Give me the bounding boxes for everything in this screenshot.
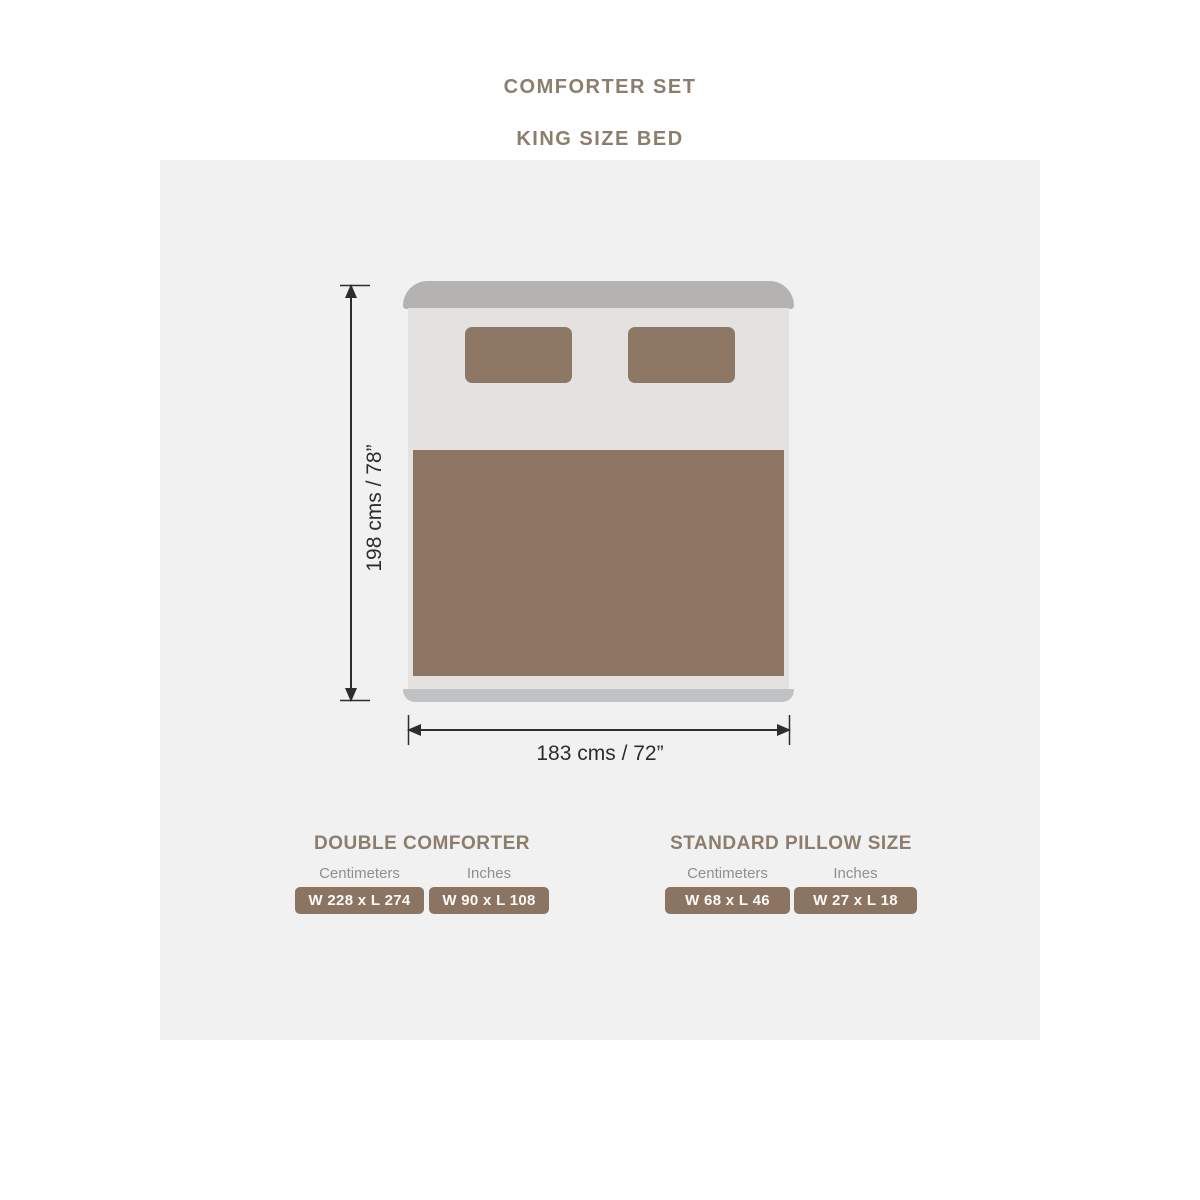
size-badge: W 228 x L 274 <box>295 887 424 914</box>
spec-heading: STANDARD PILLOW SIZE <box>665 834 917 854</box>
spec-heading: DOUBLE COMFORTER <box>295 834 549 854</box>
unit-label: Centimeters <box>687 866 768 882</box>
pillow-left <box>465 327 572 383</box>
bed-comforter <box>413 450 784 676</box>
bed-width-label: 183 cms / 72” <box>536 742 663 766</box>
spec-col-inches: Inches W 90 x L 108 <box>429 866 549 914</box>
spec-columns: Centimeters W 68 x L 46 Inches W 27 x L … <box>665 866 917 914</box>
page-subtitle: KING SIZE BED <box>0 128 1200 151</box>
unit-label: Inches <box>833 866 877 882</box>
unit-label: Inches <box>467 866 511 882</box>
size-badge: W 68 x L 46 <box>665 887 790 914</box>
spec-columns: Centimeters W 228 x L 274 Inches W 90 x … <box>295 866 549 914</box>
bed-height-label: 198 cms / 78” <box>363 444 387 571</box>
spec-col-centimeters: Centimeters W 228 x L 274 <box>295 866 424 914</box>
unit-label: Centimeters <box>319 866 400 882</box>
size-badge: W 27 x L 18 <box>794 887 917 914</box>
size-chart-panel: 198 cms / 78” 183 cms / 72” DOUBLE COMFO… <box>160 160 1040 1040</box>
bed-footer <box>403 689 794 702</box>
bed-diagram <box>403 281 794 702</box>
size-badge: W 90 x L 108 <box>429 887 549 914</box>
page-title: COMFORTER SET <box>0 76 1200 99</box>
spec-col-centimeters: Centimeters W 68 x L 46 <box>665 866 790 914</box>
bed-headboard <box>403 281 794 309</box>
spec-col-inches: Inches W 27 x L 18 <box>794 866 917 914</box>
pillow-right <box>628 327 735 383</box>
